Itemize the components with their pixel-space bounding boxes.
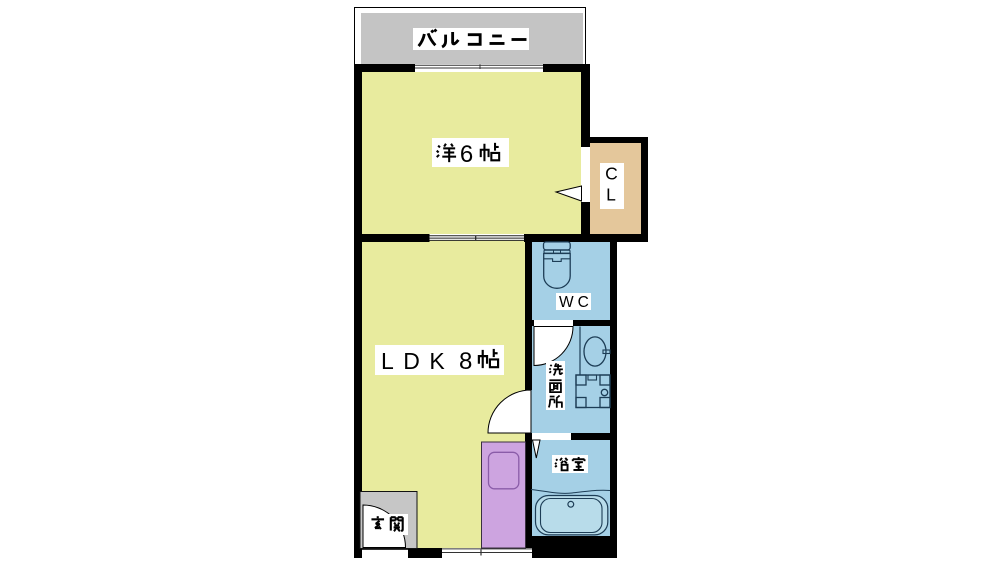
svg-text:WC: WC bbox=[559, 294, 593, 311]
svg-text:LDK: LDK bbox=[381, 348, 454, 374]
svg-text:C: C bbox=[605, 164, 618, 184]
svg-text:L: L bbox=[606, 185, 616, 205]
svg-text:8: 8 bbox=[459, 348, 472, 375]
svg-text:6: 6 bbox=[460, 141, 473, 168]
